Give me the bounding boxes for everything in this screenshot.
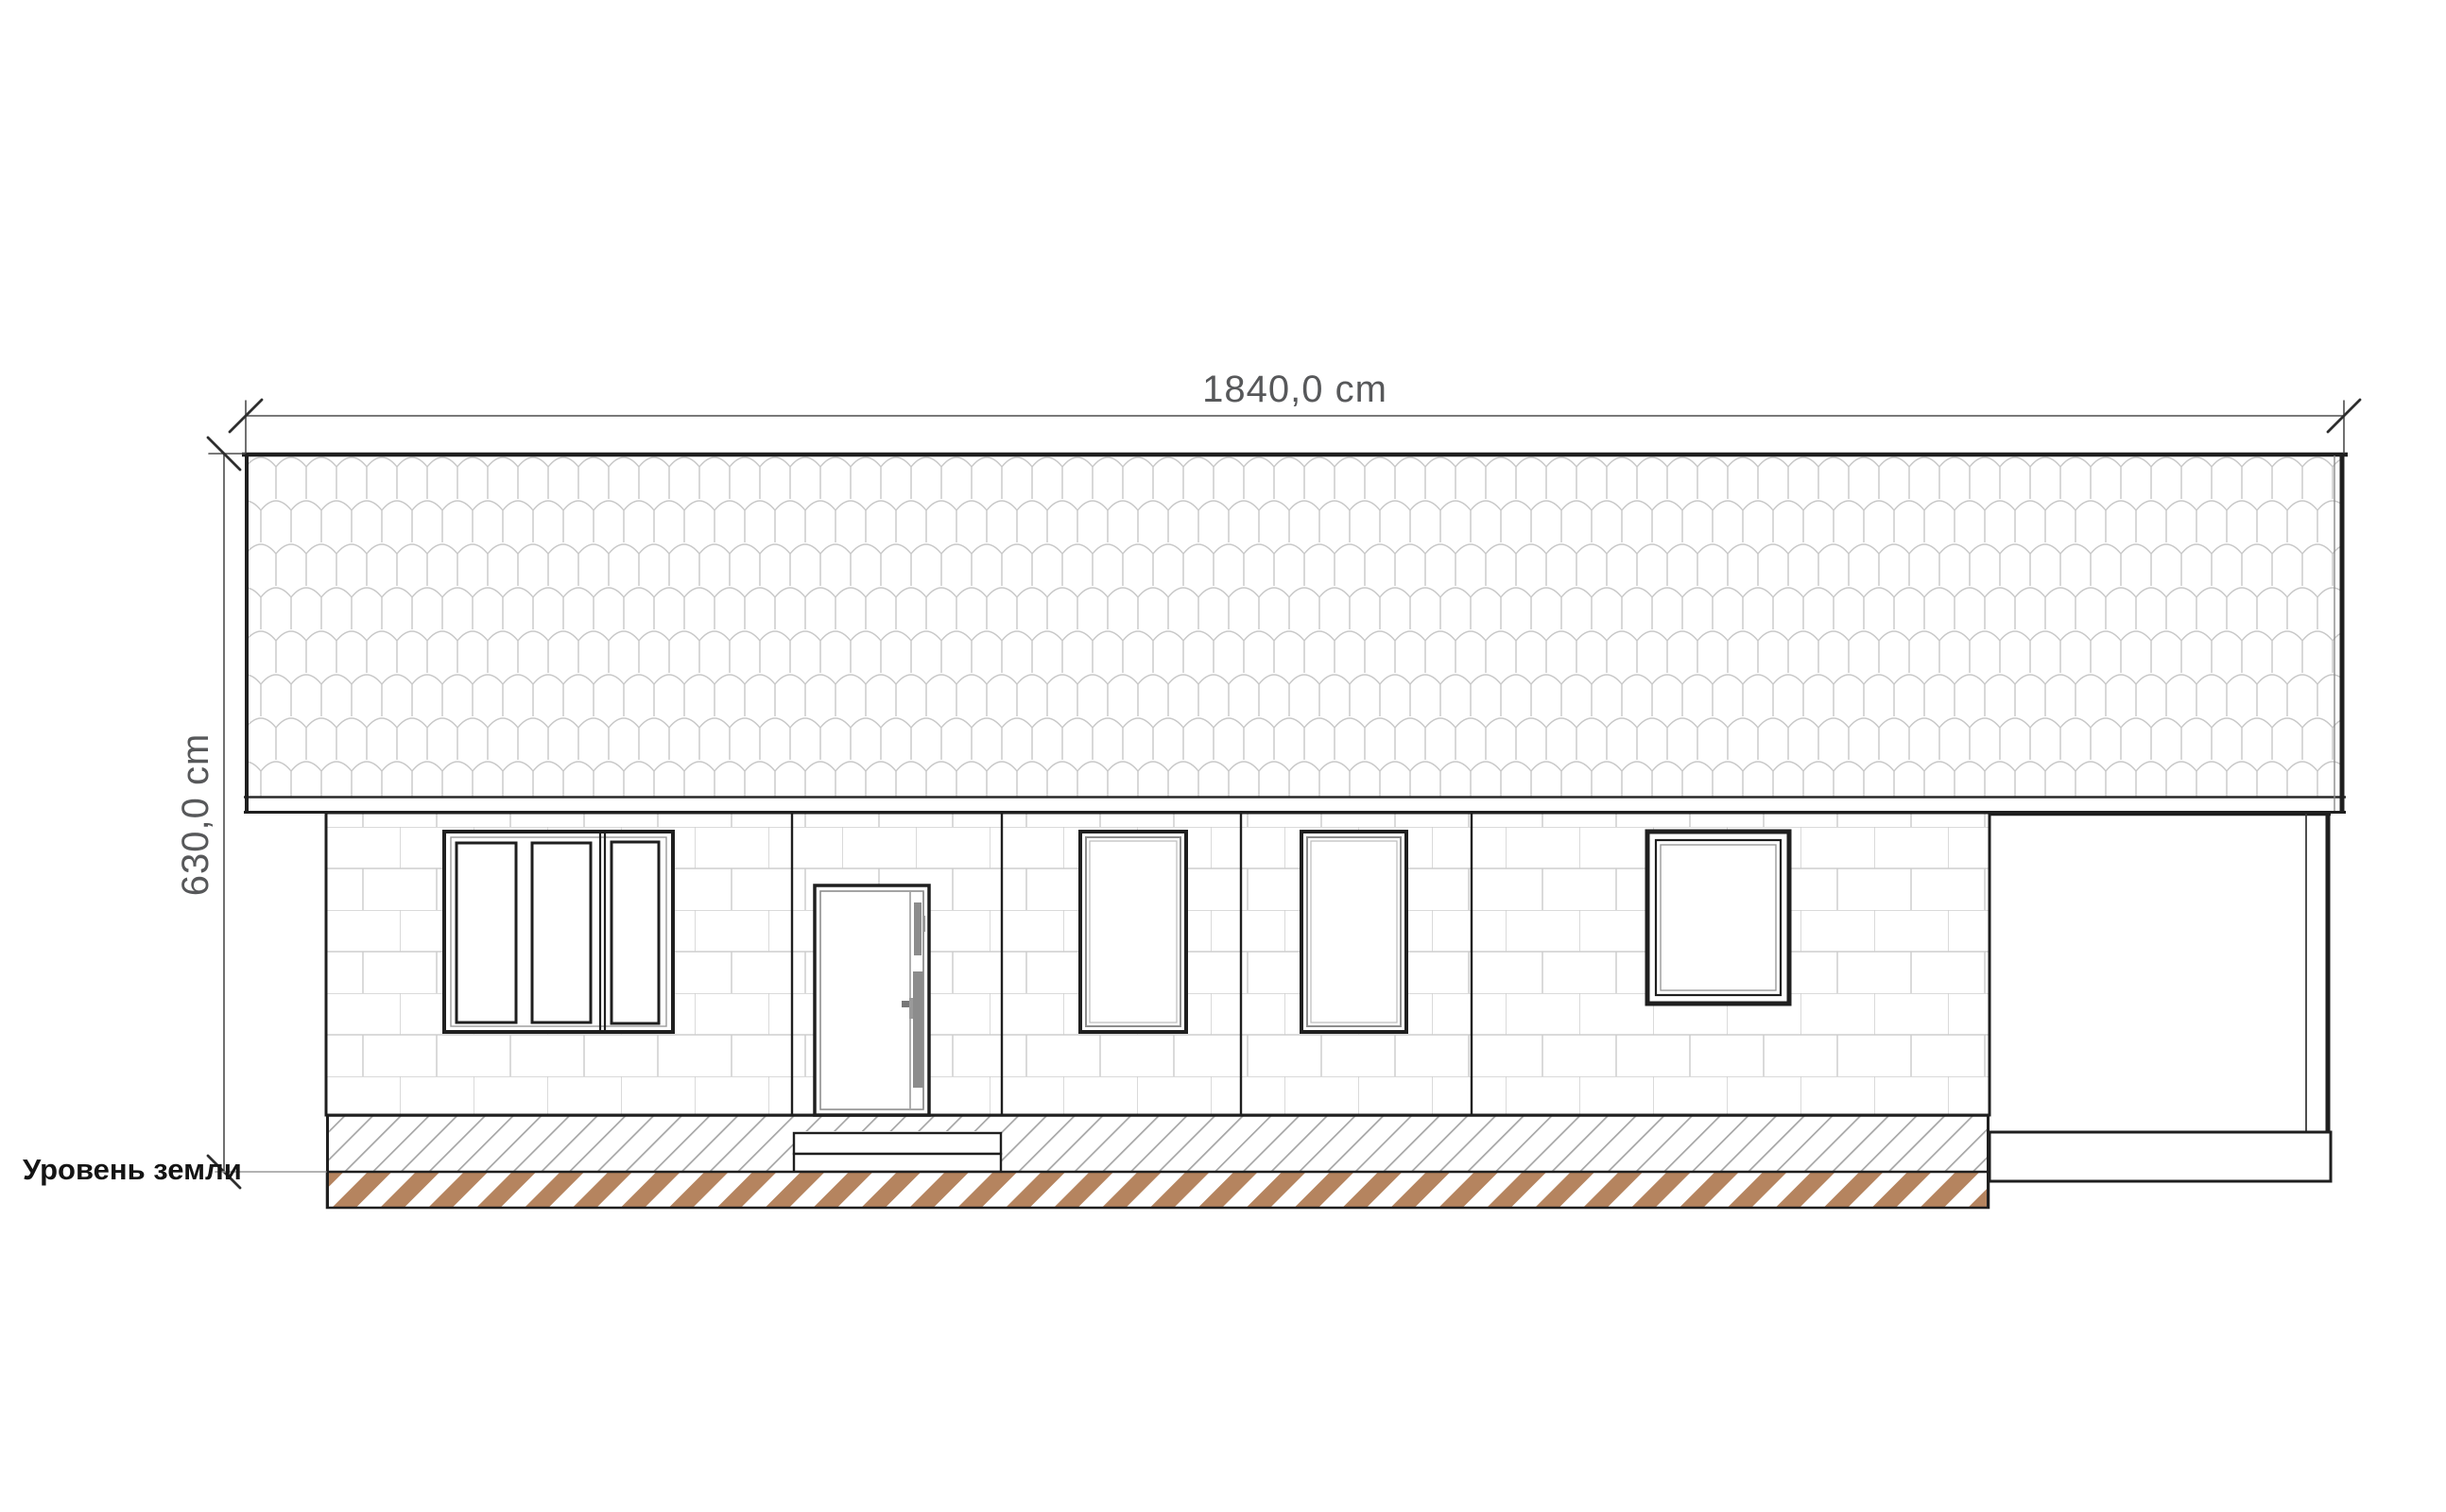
door-pull-bar [913, 971, 923, 1088]
window-sash-left [456, 843, 516, 1022]
door-leaf [820, 891, 923, 1109]
window-sash-right [611, 842, 659, 1023]
facade-elevation-drawing [0, 0, 2446, 1512]
open-porch-right [1990, 813, 2331, 1181]
tall-window-right [1301, 832, 1406, 1032]
foundation [326, 1115, 1990, 1209]
fixed-square-window [1647, 832, 1789, 1004]
door-glazing-strip-upper [914, 902, 922, 955]
door-lock-plate [909, 998, 913, 1019]
foundation-stripe-band [327, 1172, 1989, 1208]
triple-casement-window [444, 832, 673, 1032]
porch-floor-band [1990, 1132, 2331, 1181]
window-glass-line [1311, 841, 1397, 1022]
height-dimension-label: 630,0 cm [171, 649, 220, 980]
ground-level-label: Уровень земли [23, 1153, 242, 1187]
fascia-board [245, 797, 2345, 813]
door-steps [794, 1131, 1001, 1172]
tall-window-left [1080, 832, 1186, 1032]
step-lower [794, 1154, 1001, 1172]
window-glass-line [1661, 845, 1776, 990]
roof [242, 454, 2348, 813]
door-hinge [922, 916, 925, 932]
entry-door [815, 885, 929, 1115]
roof-tile-pattern [246, 455, 2344, 797]
window-sash-middle [532, 843, 591, 1022]
width-dimension-label: 1840,0 cm [1106, 369, 1484, 411]
plinth-hatch-band [327, 1116, 1989, 1172]
elevation-canvas: 1840,0 cm 630,0 cm Уровень земли [0, 0, 2446, 1512]
step-upper [794, 1133, 1001, 1154]
window-glass-line [1090, 841, 1177, 1022]
